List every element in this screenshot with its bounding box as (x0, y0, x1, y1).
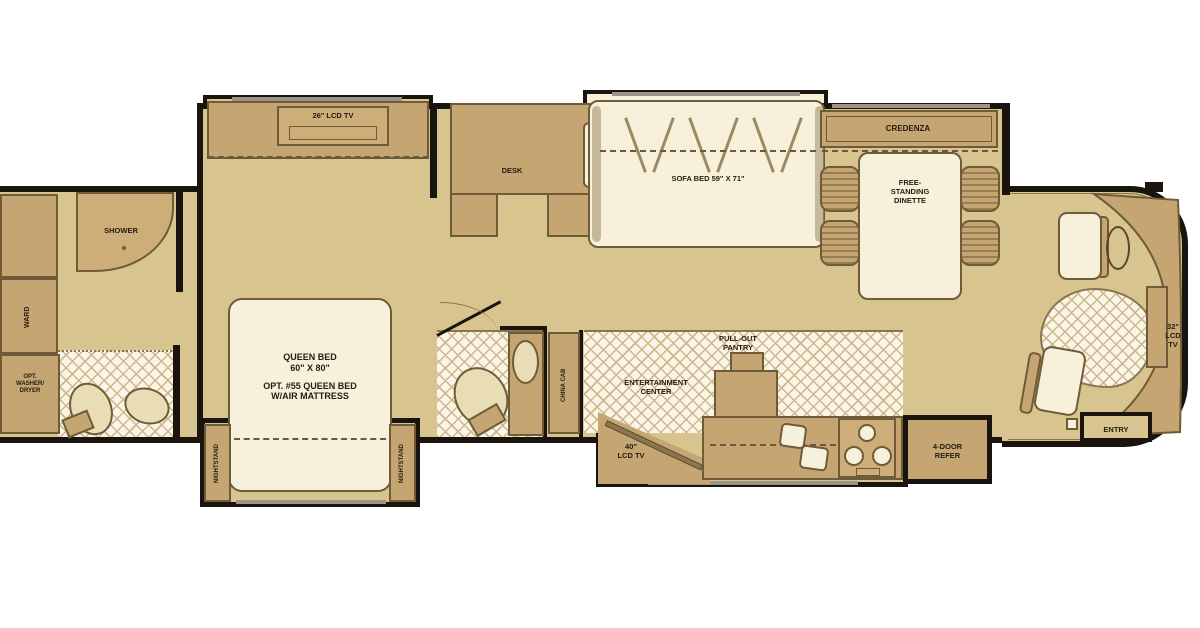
steering-wheel (1106, 226, 1130, 270)
dinette-table: FREE- STANDING DINETTE (858, 152, 962, 300)
dinette-label-3: DINETTE (862, 196, 958, 205)
cooktop (838, 418, 896, 478)
burner-1 (858, 424, 876, 442)
refer-label-2: REFER (908, 451, 987, 460)
desk-unit (450, 103, 595, 195)
washer-label-2: WASHER/ (2, 381, 58, 388)
sofa-v-2a (688, 117, 711, 173)
refer-label-1: 4-DOOR (908, 442, 987, 451)
credenza-label: CREDENZA (822, 124, 994, 134)
mid-bath-top-wall (500, 326, 547, 330)
rear-closet (0, 194, 58, 278)
ward-cabinet: WARD (0, 278, 58, 354)
bedroom-cabinet-dashline (208, 156, 429, 158)
china-cabinet: CHINA CAB (548, 332, 580, 434)
dinette-chair-3 (960, 166, 1000, 212)
dinette-label-1: FREE- (862, 178, 958, 187)
washer-label-3: DRYER (2, 388, 58, 395)
mid-bath-sink (512, 340, 539, 384)
shower-label: SHOWER (86, 226, 156, 235)
front-tv-label-2: LCD (1156, 331, 1190, 340)
bedroom-tv-label: 26" LCD TV (283, 111, 383, 120)
entry-step: ENTRY (1080, 412, 1152, 442)
rear-bath-wall-lower (173, 345, 180, 439)
refrigerator: 4-DOOR REFER (903, 415, 992, 484)
credenza-window (832, 104, 990, 108)
bedroom-tv-cabinet: 26" LCD TV (277, 106, 389, 146)
nightstand-right-label: NIGHTSTAND (399, 430, 406, 498)
rear-bath-wall-upper (176, 188, 183, 292)
kitchen-tv-label-1: 40" (602, 442, 660, 451)
cooktop-control (856, 468, 880, 476)
front-tv-label-3: TV (1156, 340, 1190, 349)
bed-label-1: QUEEN BED (232, 352, 388, 363)
pantry-label-1: PULL-OUT (690, 334, 786, 343)
bed-slide-window (236, 500, 386, 504)
bedroom-divider-wall (430, 103, 437, 198)
nightstand-left: NIGHTSTAND (204, 424, 231, 502)
china-cabinet-label: CHINA CAB (561, 342, 568, 428)
front-divider-wall (1002, 103, 1010, 195)
bed-label-3: OPT. #55 QUEEN BED (232, 381, 388, 392)
dinette-chair-2 (820, 220, 860, 266)
dinette-chair-4 (960, 220, 1000, 266)
entry-label: ENTRY (1084, 425, 1148, 434)
sofa-v-3a (752, 117, 775, 173)
bed-label-4: W/AIR MATTRESS (232, 391, 388, 402)
ent-center-label-1: ENTERTAINMENT (606, 378, 706, 387)
rv-floor-plan: WARD OPT. WASHER/ DRYER SHOWER 26" LCD T… (0, 0, 1200, 628)
burner-3 (872, 446, 892, 466)
dinette-label-2: STANDING (862, 187, 958, 196)
sofa-armrest-left (592, 106, 601, 242)
dinette-chair-1 (820, 166, 860, 212)
ward-label: WARD (24, 288, 32, 346)
bed-label-2: 60" X 80" (232, 363, 388, 374)
sofa-bed: SOFA BED 59" X 71" (588, 100, 825, 248)
sofa-dashline (600, 150, 816, 152)
washer-dryer-cabinet: OPT. WASHER/ DRYER (0, 354, 60, 434)
queen-bed: QUEEN BED 60" X 80" OPT. #55 QUEEN BED W… (228, 298, 392, 492)
sofa-label: SOFA BED 59" X 71" (630, 174, 786, 183)
desk-label: DESK (472, 166, 552, 175)
washer-label-1: OPT. (2, 374, 58, 381)
driver-seat (1058, 212, 1102, 280)
bedroom-tv-screen (289, 126, 377, 140)
galley-sink-basin-2 (798, 444, 829, 472)
kitchen-tv-label-2: LCD TV (602, 451, 660, 460)
front-tv-label-1: 32" (1156, 322, 1190, 331)
nightstand-left-label: NIGHTSTAND (214, 430, 221, 498)
sofa-window (612, 92, 800, 96)
sofa-v-1b (652, 117, 675, 173)
shower-drain (122, 246, 126, 250)
pantry-label-2: PANTRY (690, 343, 786, 352)
sofa-v-3b (780, 117, 803, 173)
desk-left-pedestal (450, 193, 498, 237)
sofa-v-1a (624, 117, 647, 173)
nightstand-right: NIGHTSTAND (389, 424, 416, 502)
ent-center-label-2: CENTER (606, 387, 706, 396)
burner-2 (844, 446, 864, 466)
sofa-v-2b (716, 117, 739, 173)
bed-slide-dashline (234, 438, 386, 440)
entry-step-pad (1066, 418, 1078, 430)
credenza: CREDENZA (820, 110, 998, 148)
